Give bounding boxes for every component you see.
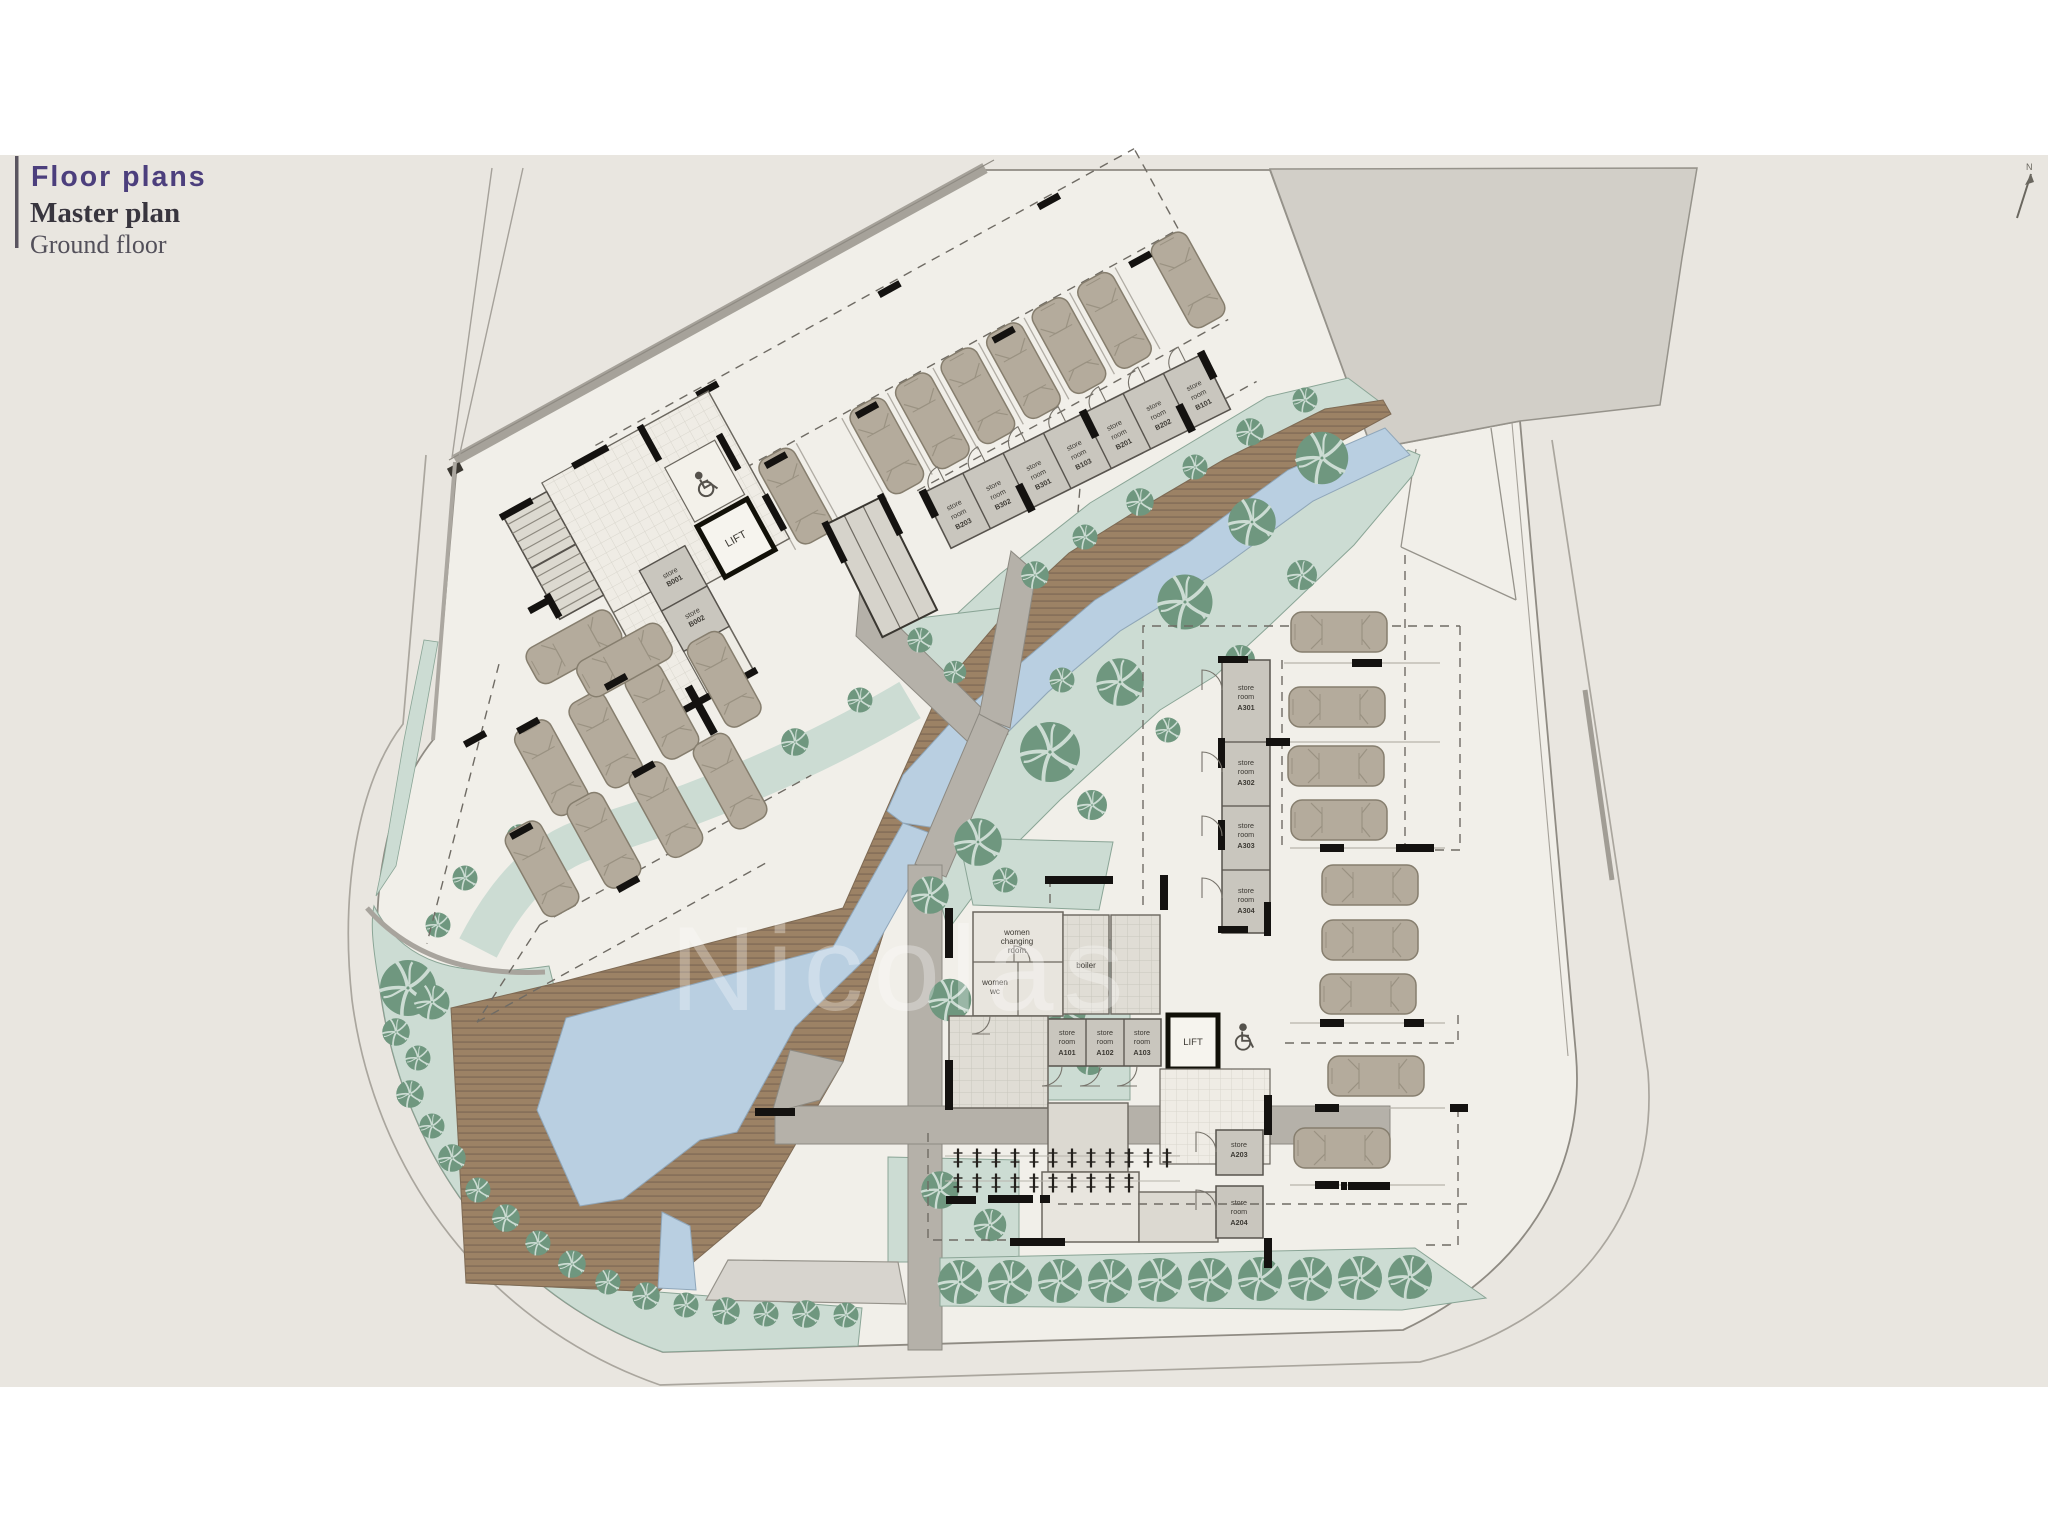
svg-text:room: room: [1238, 692, 1254, 701]
svg-text:Nicolas: Nicolas: [670, 902, 1133, 1036]
svg-text:store: store: [1238, 758, 1254, 767]
svg-text:room: room: [1238, 830, 1254, 839]
svg-text:room: room: [1059, 1037, 1075, 1046]
svg-text:A103: A103: [1133, 1048, 1150, 1057]
svg-text:store: store: [1231, 1140, 1247, 1149]
svg-text:A102: A102: [1096, 1048, 1113, 1057]
svg-text:store: store: [1134, 1028, 1150, 1037]
svg-text:room: room: [1097, 1037, 1113, 1046]
svg-text:A303: A303: [1237, 841, 1254, 850]
svg-text:A203: A203: [1230, 1150, 1247, 1159]
svg-text:room: room: [1134, 1037, 1150, 1046]
svg-text:room: room: [1231, 1207, 1247, 1216]
svg-text:N: N: [2026, 162, 2033, 172]
svg-text:room: room: [1238, 895, 1254, 904]
svg-text:Master plan: Master plan: [30, 197, 180, 229]
svg-text:A204: A204: [1230, 1218, 1247, 1227]
svg-text:store: store: [1238, 886, 1254, 895]
svg-text:Ground floor: Ground floor: [30, 230, 167, 259]
svg-text:store: store: [1238, 821, 1254, 830]
svg-text:A101: A101: [1058, 1048, 1075, 1057]
svg-text:store: store: [1231, 1198, 1247, 1207]
svg-text:store: store: [1238, 683, 1254, 692]
svg-text:room: room: [1238, 767, 1254, 776]
svg-text:A304: A304: [1237, 906, 1254, 915]
svg-text:LIFT: LIFT: [1183, 1037, 1203, 1048]
svg-text:A301: A301: [1237, 703, 1254, 712]
svg-text:A302: A302: [1237, 778, 1254, 787]
svg-text:Floor plans: Floor plans: [31, 161, 207, 193]
